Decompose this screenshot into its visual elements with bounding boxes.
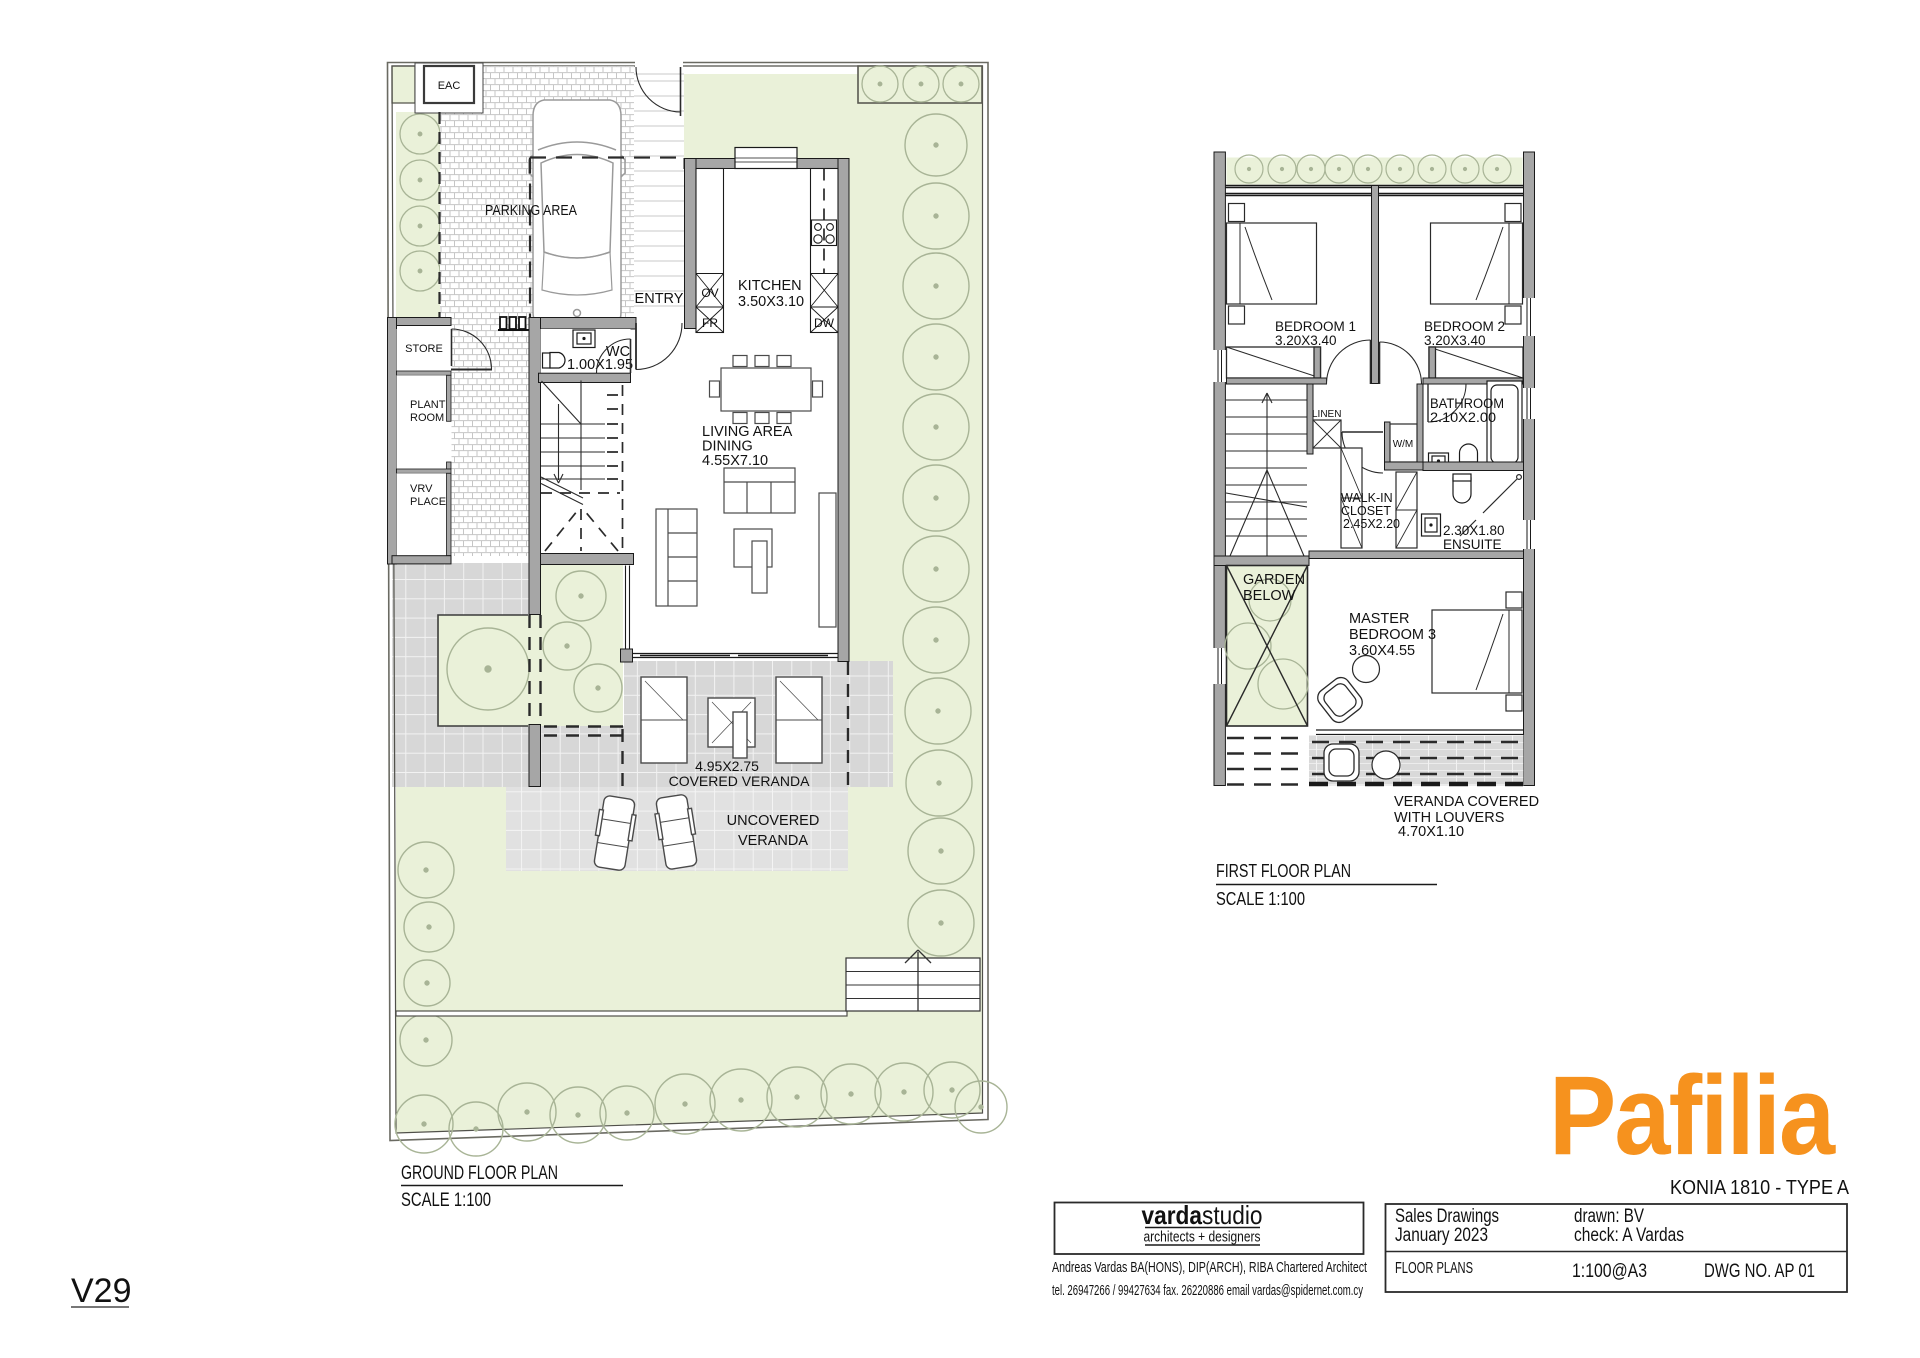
svg-text:LINEN: LINEN — [1312, 409, 1341, 420]
svg-text:VERANDA COVERED: VERANDA COVERED — [1394, 794, 1539, 810]
svg-text:4.70X1.10: 4.70X1.10 — [1398, 824, 1464, 840]
svg-text:BEDROOM 2: BEDROOM 2 — [1424, 319, 1505, 334]
svg-text:PLACE: PLACE — [410, 496, 446, 508]
svg-text:STORE: STORE — [405, 343, 443, 355]
svg-text:3.20X3.40: 3.20X3.40 — [1424, 333, 1486, 348]
svg-text:Pafilia: Pafilia — [1549, 1053, 1836, 1178]
svg-text:GARDEN: GARDEN — [1243, 572, 1305, 588]
svg-text:COVERED VERANDA: COVERED VERANDA — [669, 773, 810, 789]
svg-text:PLANT: PLANT — [410, 399, 446, 411]
svg-text:PARKING AREA: PARKING AREA — [485, 203, 577, 219]
svg-text:CLOSET: CLOSET — [1341, 504, 1391, 518]
svg-text:3.50X3.10: 3.50X3.10 — [738, 294, 804, 310]
svg-text:1:100@A3: 1:100@A3 — [1572, 1261, 1647, 1282]
svg-text:BEDROOM 3: BEDROOM 3 — [1349, 627, 1436, 643]
svg-text:FIRST FLOOR PLAN: FIRST FLOOR PLAN — [1216, 861, 1351, 881]
svg-text:check: A Vardas: check: A Vardas — [1574, 1225, 1684, 1246]
svg-text:MASTER: MASTER — [1349, 611, 1409, 627]
svg-text:UNCOVERED: UNCOVERED — [727, 813, 820, 829]
svg-text:FLOOR PLANS: FLOOR PLANS — [1395, 1260, 1473, 1277]
svg-text:architects + designers: architects + designers — [1144, 1229, 1261, 1246]
svg-text:4.95X2.75: 4.95X2.75 — [695, 758, 759, 774]
svg-text:2.30X1.80: 2.30X1.80 — [1443, 523, 1505, 538]
svg-text:3.20X3.40: 3.20X3.40 — [1275, 333, 1337, 348]
svg-text:January 2023: January 2023 — [1395, 1225, 1488, 1246]
svg-text:KONIA 1810 - TYPE A: KONIA 1810 - TYPE A — [1670, 1176, 1849, 1199]
svg-text:V29: V29 — [71, 1272, 132, 1310]
svg-text:Andreas Vardas BA(HONS), DIP(A: Andreas Vardas BA(HONS), DIP(ARCH), RIBA… — [1052, 1259, 1368, 1276]
svg-text:OV: OV — [701, 286, 718, 300]
svg-text:ENSUITE: ENSUITE — [1443, 537, 1502, 552]
svg-text:WALK-IN: WALK-IN — [1341, 491, 1393, 505]
svg-text:BEDROOM 1: BEDROOM 1 — [1275, 319, 1356, 334]
svg-text:KITCHEN: KITCHEN — [738, 278, 802, 294]
svg-text:4.55X7.10: 4.55X7.10 — [702, 453, 768, 469]
svg-text:1.00X1.95: 1.00X1.95 — [567, 357, 633, 373]
svg-text:BATHROOM: BATHROOM — [1430, 396, 1504, 411]
svg-text:DW: DW — [814, 316, 835, 330]
svg-text:BELOW: BELOW — [1243, 588, 1296, 604]
svg-text:VERANDA: VERANDA — [738, 833, 808, 849]
svg-text:VRV: VRV — [410, 483, 433, 495]
svg-text:3.60X4.55: 3.60X4.55 — [1349, 643, 1415, 659]
svg-text:ROOM: ROOM — [410, 412, 444, 424]
svg-text:tel. 26947266 / 99427634 fax.: tel. 26947266 / 99427634 fax. 26220886 e… — [1052, 1282, 1363, 1299]
svg-text:SCALE 1:100: SCALE 1:100 — [401, 1190, 491, 1211]
svg-text:W/M: W/M — [1393, 439, 1414, 450]
svg-text:GROUND FLOOR PLAN: GROUND FLOOR PLAN — [401, 1163, 558, 1184]
svg-text:DWG NO. AP 01: DWG NO. AP 01 — [1704, 1261, 1815, 1282]
svg-text:Sales Drawings: Sales Drawings — [1395, 1206, 1499, 1227]
svg-text:2.10X2.00: 2.10X2.00 — [1430, 410, 1496, 425]
svg-text:vardastudio: vardastudio — [1142, 1200, 1263, 1230]
svg-text:ENTRY: ENTRY — [635, 291, 684, 307]
svg-text:2.45X2.20: 2.45X2.20 — [1343, 517, 1400, 531]
svg-text:SCALE 1:100: SCALE 1:100 — [1216, 889, 1305, 909]
svg-text:drawn: BV: drawn: BV — [1574, 1206, 1644, 1227]
svg-text:FR: FR — [702, 316, 718, 330]
svg-text:EAC: EAC — [438, 80, 461, 92]
